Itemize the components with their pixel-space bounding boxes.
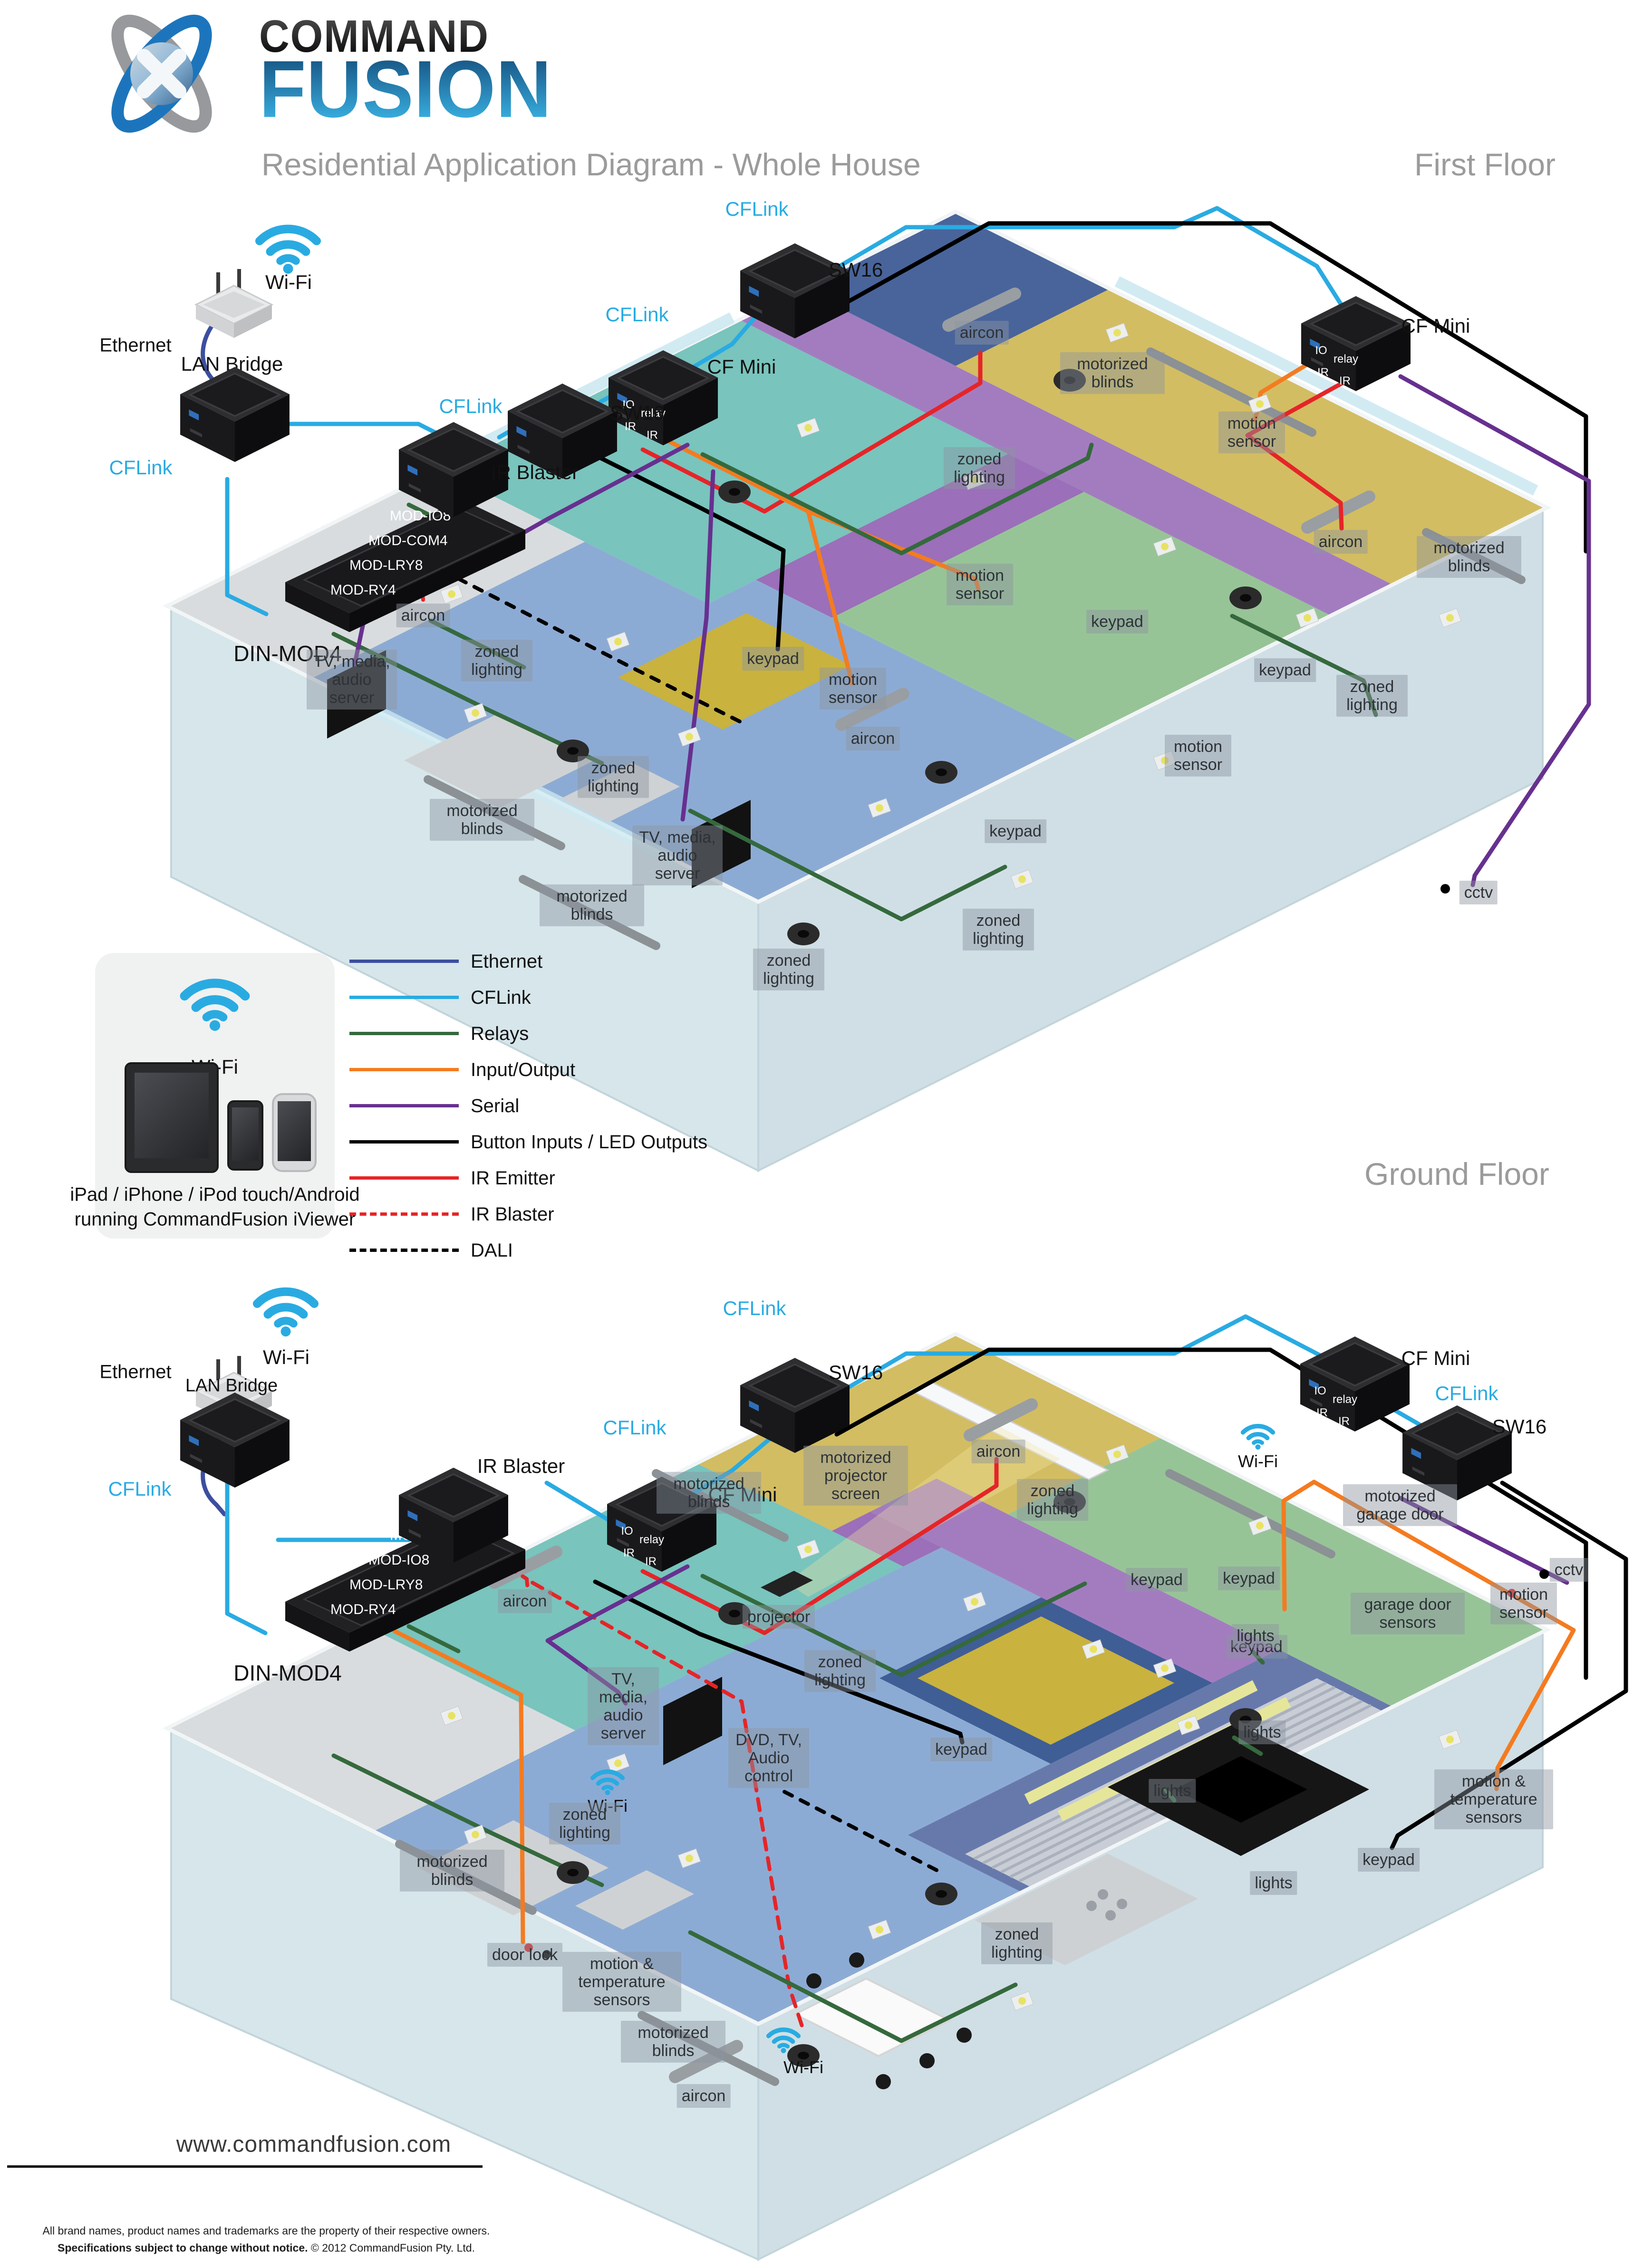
legend-label: Ethernet — [471, 951, 542, 972]
sw16-b-label: SW16 — [610, 402, 664, 424]
viewer-caption-2: running CommandFusion iViewer — [75, 1209, 356, 1230]
label-zoned-lighting: zoned lighting — [578, 756, 649, 798]
label-zoned-lighting: zoned lighting — [1017, 1479, 1088, 1521]
cflink-label-ff-4: CFLink — [439, 395, 502, 418]
cf-mini-4-label: CF Mini — [1401, 1347, 1470, 1370]
label-zoned-lighting: zoned lighting — [461, 640, 532, 682]
port-ir-4b: IR — [1338, 1415, 1350, 1428]
port-ir-3b: IR — [645, 1555, 657, 1568]
legend-label: Serial — [471, 1096, 519, 1117]
ir-blaster-gf — [399, 1468, 508, 1563]
sw16-d-label: SW16 — [1492, 1415, 1546, 1438]
module-4-ff: MOD-RY4 — [330, 582, 396, 598]
footer-rule — [7, 2165, 483, 2168]
label-aircon: aircon — [1314, 530, 1368, 554]
module-3-ff: MOD-LRY8 — [349, 557, 423, 573]
ipod — [227, 1100, 263, 1171]
label-motion-sensor: motion sensor — [1490, 1583, 1557, 1624]
label-zoned-lighting: zoned lighting — [1336, 675, 1408, 717]
footer-url[interactable]: www.commandfusion.com — [176, 2132, 452, 2158]
label-lights: lights — [1238, 1720, 1285, 1744]
legend-line-sample — [349, 960, 459, 963]
cflink-label-gf-1: CFLink — [108, 1478, 171, 1500]
label-cctv: cctv — [1550, 1558, 1588, 1582]
port-relay-2: relay — [1334, 353, 1358, 366]
cflink-label-ff-3: CFLink — [605, 303, 668, 326]
port-io-4: IO — [1314, 1384, 1326, 1398]
label-motion-temperature-sensors: motion & temperature sensors — [1434, 1769, 1553, 1829]
port-ir-2a: IR — [1317, 366, 1329, 379]
label-keypad: keypad — [1218, 1566, 1280, 1590]
label-motorized-blinds: motorized blinds — [430, 799, 534, 841]
viewer-caption-1: iPad / iPhone / iPod touch/Android — [70, 1184, 359, 1206]
cflink-label-gf-2: CFLink — [723, 1297, 786, 1320]
port-io-2: IO — [1315, 344, 1327, 357]
cflink-label-gf-4: CFLink — [1435, 1382, 1498, 1405]
legend-line-sample — [349, 1212, 459, 1219]
port-ir-1b: IR — [647, 429, 658, 442]
legend-label: IR Emitter — [471, 1168, 555, 1189]
port-relay-3: relay — [639, 1533, 664, 1547]
sw16-a-label: SW16 — [829, 259, 883, 281]
router-ff — [193, 269, 274, 345]
ir-blaster-label-gf: IR Blaster — [477, 1455, 565, 1478]
label-motorized-blinds: motorized blinds — [657, 1472, 761, 1514]
legend-label: IR Blaster — [471, 1204, 554, 1225]
label-tv-media-audio-server: TV, media, audio server — [588, 1667, 659, 1745]
label-dvd-tv-audio-control: DVD, TV, Audio control — [728, 1728, 809, 1788]
wifi-icon-gf — [250, 1277, 321, 1336]
wifi-label-dining: Wi-Fi — [783, 2057, 823, 2077]
cflink-label-ff-1: CFLink — [109, 456, 172, 479]
brand-fusion: FUSION — [259, 53, 552, 126]
label-tv-media-audio-server: TV, media, audio server — [632, 826, 723, 885]
label-motorized-blinds: motorized blinds — [1060, 352, 1165, 394]
label-keypad: keypad — [742, 647, 804, 671]
wifi-icon-living — [589, 1764, 627, 1795]
module-3-gf: MOD-LRY8 — [349, 1577, 423, 1593]
label-motion-sensor: motion sensor — [947, 564, 1013, 605]
module-2-ff: MOD-COM4 — [368, 533, 448, 548]
footer-fineprint-1: All brand names, product names and trade… — [43, 2225, 490, 2238]
sw16-a-ff — [740, 243, 850, 338]
ir-blaster-label-ff: IR Blaster — [491, 461, 579, 484]
label-aircon: aircon — [955, 321, 1009, 345]
label-lights: lights — [1250, 1871, 1297, 1895]
label-zoned-lighting: zoned lighting — [804, 1650, 876, 1692]
label-keypad: keypad — [1126, 1568, 1188, 1592]
module-4-gf: MOD-RY4 — [330, 1602, 396, 1617]
label-zoned-lighting: zoned lighting — [549, 1803, 620, 1845]
legend-line-sample — [349, 1140, 459, 1144]
lan-bridge-ff — [180, 367, 290, 462]
legend-line-sample — [349, 1104, 459, 1107]
phone — [272, 1093, 317, 1172]
legend: EthernetCFLinkRelaysInput/OutputSerialBu… — [349, 953, 711, 1267]
page-title: Residential Application Diagram - Whole … — [261, 146, 921, 183]
ethernet-wires — [203, 311, 224, 1514]
wifi-icon-panel — [177, 967, 253, 1031]
label-door-lock: door lock — [487, 1943, 562, 1967]
label-motorized-blinds: motorized blinds — [621, 2021, 725, 2063]
legend-line-sample — [349, 1249, 459, 1255]
din-mod4-label-gf: DIN-MOD4 — [233, 1660, 341, 1686]
legend-label: Button Inputs / LED Outputs — [471, 1132, 707, 1153]
footer-fineprint-2: Specifications subject to change without… — [58, 2242, 475, 2255]
label-motorized-blinds: motorized blinds — [1417, 536, 1521, 578]
legend-label: DALI — [471, 1240, 513, 1261]
wifi-icon-ff — [252, 214, 324, 274]
label-motion-temperature-sensors: motion & temperature sensors — [562, 1952, 681, 2012]
label-zoned-lighting: zoned lighting — [944, 447, 1015, 489]
label-motorized-blinds: motorized blinds — [540, 884, 644, 926]
label-motorized-garage-door: motorized garage door — [1343, 1484, 1457, 1526]
label-keypad: keypad — [1086, 610, 1148, 634]
cf-mini-1-label: CF Mini — [707, 356, 776, 378]
label-lights: lights — [1149, 1779, 1196, 1803]
wifi-label-purple: Wi-Fi — [1238, 1451, 1278, 1471]
label-motorized-blinds: motorized blinds — [400, 1850, 504, 1892]
label-keypad: keypad — [1254, 658, 1316, 682]
label-aircon: aircon — [396, 604, 450, 627]
ethernet-label-gf: Ethernet — [99, 1362, 171, 1383]
ground-floor-title: Ground Floor — [1364, 1156, 1549, 1192]
label-zoned-lighting: zoned lighting — [963, 909, 1034, 951]
port-ir-4a: IR — [1316, 1406, 1328, 1420]
label-projector: projector — [743, 1605, 815, 1629]
port-io-3: IO — [621, 1525, 633, 1538]
label-garage-door-sensors: garage door sensors — [1351, 1593, 1465, 1634]
legend-line-sample — [349, 1032, 459, 1035]
port-ir-2b: IR — [1339, 375, 1351, 388]
port-relay-4: relay — [1333, 1393, 1357, 1406]
label-aircon: aircon — [972, 1440, 1025, 1463]
footer-fineprint-2-rest: © 2012 CommandFusion Pty. Ltd. — [308, 2242, 475, 2254]
label-tv-media-audio-server: TV, media, audio server — [307, 650, 397, 710]
lan-bridge-gf — [180, 1393, 290, 1488]
label-motion-sensor: motion sensor — [820, 668, 886, 710]
legend-line-sample — [349, 1176, 459, 1180]
label-keypad: keypad — [930, 1738, 992, 1761]
legend-line-sample — [349, 996, 459, 999]
legend-label: Input/Output — [471, 1059, 575, 1081]
label-zoned-lighting: zoned lighting — [981, 1922, 1053, 1964]
sw16-c-label: SW16 — [829, 1361, 883, 1384]
first-floor-title: First Floor — [1414, 146, 1556, 183]
label-motion-sensor: motion sensor — [1218, 412, 1285, 453]
wifi-icon-purple — [1239, 1418, 1277, 1450]
cflink-label-ff-2: CFLink — [725, 198, 788, 221]
footer-fineprint-2-bold: Specifications subject to change without… — [58, 2242, 308, 2254]
label-zoned-lighting: zoned lighting — [753, 949, 824, 990]
label-aircon: aircon — [498, 1589, 552, 1613]
cf-mini-2-label: CF Mini — [1401, 315, 1470, 337]
label-motorized-projector-screen: motorized projector screen — [803, 1446, 908, 1506]
legend-label: Relays — [471, 1023, 529, 1045]
logo — [88, 2, 235, 145]
label-motion-sensor: motion sensor — [1165, 735, 1231, 777]
label-keypad: keypad — [1358, 1848, 1420, 1872]
label-keypad: keypad — [985, 819, 1046, 843]
legend-line-sample — [349, 1068, 459, 1071]
legend-label: CFLink — [471, 987, 531, 1009]
label-cctv: cctv — [1459, 881, 1498, 904]
wifi-icon-dining — [764, 2022, 802, 2053]
label-aircon: aircon — [846, 727, 900, 750]
label-lights: lights — [1232, 1624, 1279, 1648]
port-ir-3a: IR — [623, 1547, 635, 1560]
cflink-label-gf-3: CFLink — [603, 1416, 666, 1439]
label-aircon: aircon — [677, 2084, 731, 2108]
ethernet-label-ff: Ethernet — [99, 335, 171, 356]
tablet — [125, 1062, 219, 1173]
